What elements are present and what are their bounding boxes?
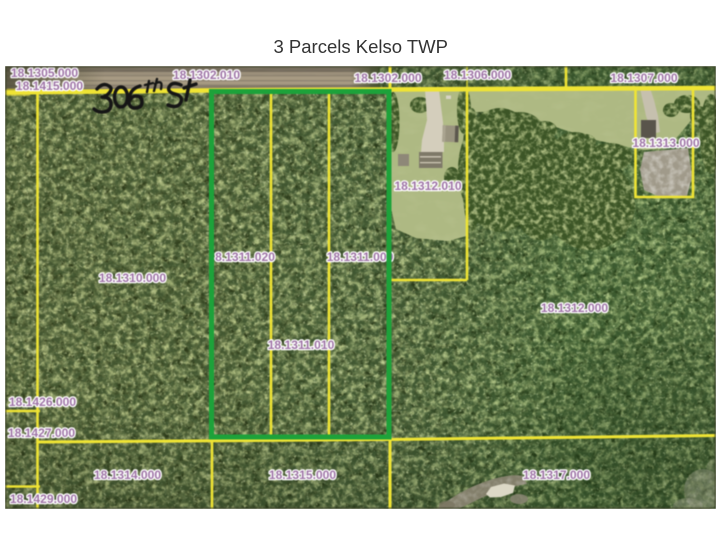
svg-text:18.1302.010: 18.1302.010	[173, 68, 241, 82]
svg-text:3 Parcels Kelso TWP: 3 Parcels Kelso TWP	[274, 36, 448, 57]
svg-text:18.1312.010: 18.1312.010	[394, 179, 462, 193]
svg-text:18.1317.000: 18.1317.000	[523, 468, 591, 482]
svg-text:18.1312.000: 18.1312.000	[541, 301, 609, 315]
svg-text:18.1302.000: 18.1302.000	[354, 71, 422, 85]
svg-text:18.1426.000: 18.1426.000	[9, 395, 77, 409]
svg-text:18.1311.010: 18.1311.010	[268, 338, 335, 352]
svg-text:18.1307.000: 18.1307.000	[610, 71, 678, 85]
svg-text:18.1305.000: 18.1305.000	[11, 66, 79, 80]
svg-text:18.1306.000: 18.1306.000	[444, 68, 512, 82]
svg-text:18.1314.000: 18.1314.000	[94, 468, 162, 482]
svg-text:18.1311.000: 18.1311.000	[327, 250, 394, 264]
svg-text:18.1429.000: 18.1429.000	[10, 492, 78, 506]
svg-text:18.1415.000: 18.1415.000	[16, 79, 84, 93]
svg-text:18.1310.000: 18.1310.000	[99, 271, 167, 285]
svg-text:18.1427.000: 18.1427.000	[8, 426, 76, 440]
svg-text:18.1315.000: 18.1315.000	[269, 468, 337, 482]
svg-text:18.1313.000: 18.1313.000	[632, 136, 700, 150]
svg-text:8.1311.020: 8.1311.020	[215, 250, 275, 264]
